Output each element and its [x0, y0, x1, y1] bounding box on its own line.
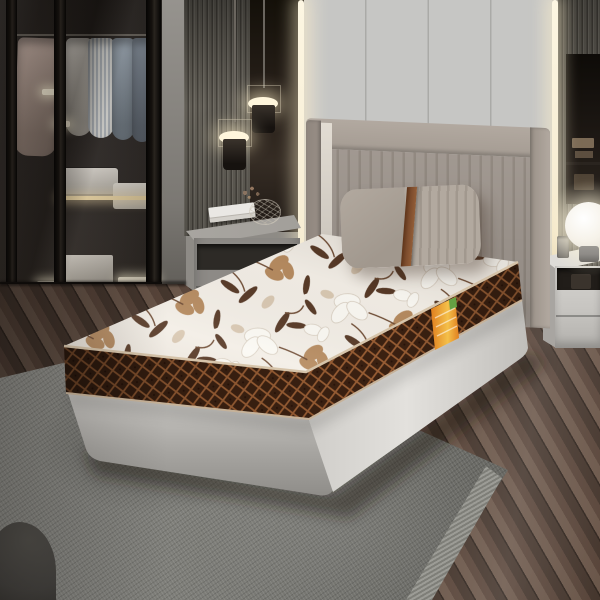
bed [0, 0, 600, 600]
bedroom-scene [0, 0, 600, 600]
pillow [339, 184, 481, 269]
pillow-smooth-half [339, 187, 408, 269]
